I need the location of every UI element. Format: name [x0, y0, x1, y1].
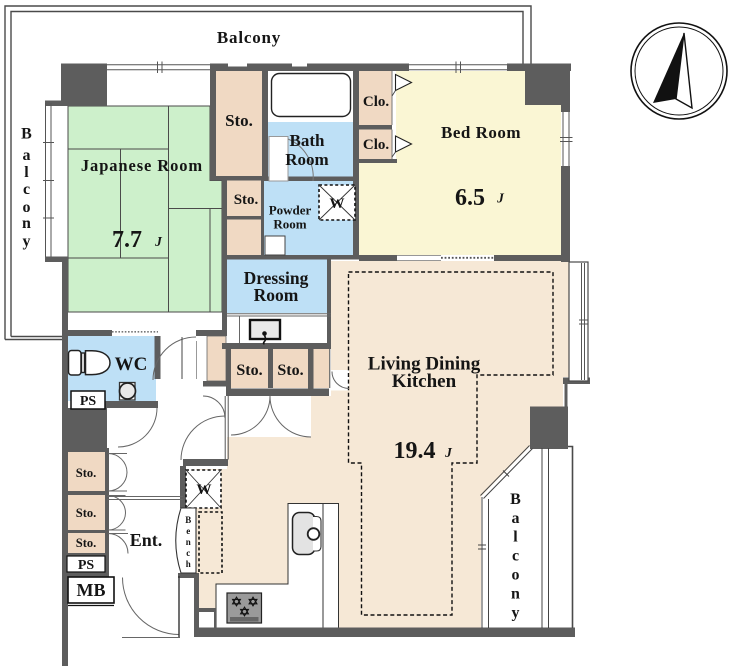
svg-text:Bath: Bath [290, 131, 326, 150]
svg-text:J: J [444, 445, 453, 460]
svg-text:J: J [496, 191, 505, 206]
svg-text:Clo.: Clo. [363, 94, 390, 110]
svg-text:W: W [330, 196, 345, 212]
svg-text:o: o [23, 199, 31, 216]
svg-text:c: c [512, 548, 519, 565]
svg-text:19.4: 19.4 [394, 438, 436, 464]
svg-text:B: B [510, 491, 521, 508]
svg-text:Ent.: Ent. [130, 530, 163, 550]
svg-text:l: l [24, 164, 29, 181]
svg-text:J: J [154, 234, 163, 249]
svg-text:Clo.: Clo. [363, 137, 390, 153]
svg-text:6.5: 6.5 [455, 185, 485, 211]
svg-text:PS: PS [80, 394, 97, 409]
svg-text:Sto.: Sto. [76, 536, 97, 550]
svg-text:Japanese Room: Japanese Room [81, 156, 203, 175]
svg-text:Room: Room [254, 285, 299, 305]
svg-text:Sto.: Sto. [225, 111, 253, 130]
svg-text:Powder: Powder [269, 203, 312, 218]
svg-text:y: y [23, 233, 31, 250]
svg-text:Sto.: Sto. [76, 466, 97, 480]
svg-text:c: c [186, 548, 190, 558]
svg-text:7.7: 7.7 [112, 227, 142, 253]
svg-text:Sto.: Sto. [76, 506, 97, 520]
svg-text:l: l [513, 529, 518, 546]
svg-text:n: n [186, 537, 191, 547]
svg-text:PS: PS [78, 558, 95, 573]
svg-text:B: B [185, 515, 191, 525]
svg-text:a: a [512, 510, 520, 527]
svg-text:n: n [22, 215, 31, 232]
svg-text:Sto.: Sto. [277, 362, 303, 379]
svg-text:Room: Room [273, 217, 306, 232]
svg-text:h: h [186, 559, 191, 569]
svg-text:Room: Room [285, 150, 328, 169]
svg-text:B: B [21, 126, 32, 143]
svg-text:W: W [197, 482, 212, 498]
svg-text:WC: WC [115, 354, 148, 375]
svg-text:n: n [511, 586, 520, 603]
svg-text:e: e [186, 526, 190, 536]
svg-text:a: a [23, 147, 31, 164]
svg-text:MB: MB [77, 580, 106, 600]
svg-text:Balcony: Balcony [217, 28, 281, 47]
svg-text:Kitchen: Kitchen [392, 371, 457, 392]
svg-text:y: y [512, 605, 520, 622]
svg-text:c: c [23, 181, 30, 198]
svg-text:Bed Room: Bed Room [441, 123, 521, 142]
svg-text:Sto.: Sto. [234, 192, 259, 208]
svg-text:Sto.: Sto. [236, 362, 262, 379]
svg-text:o: o [512, 567, 520, 584]
